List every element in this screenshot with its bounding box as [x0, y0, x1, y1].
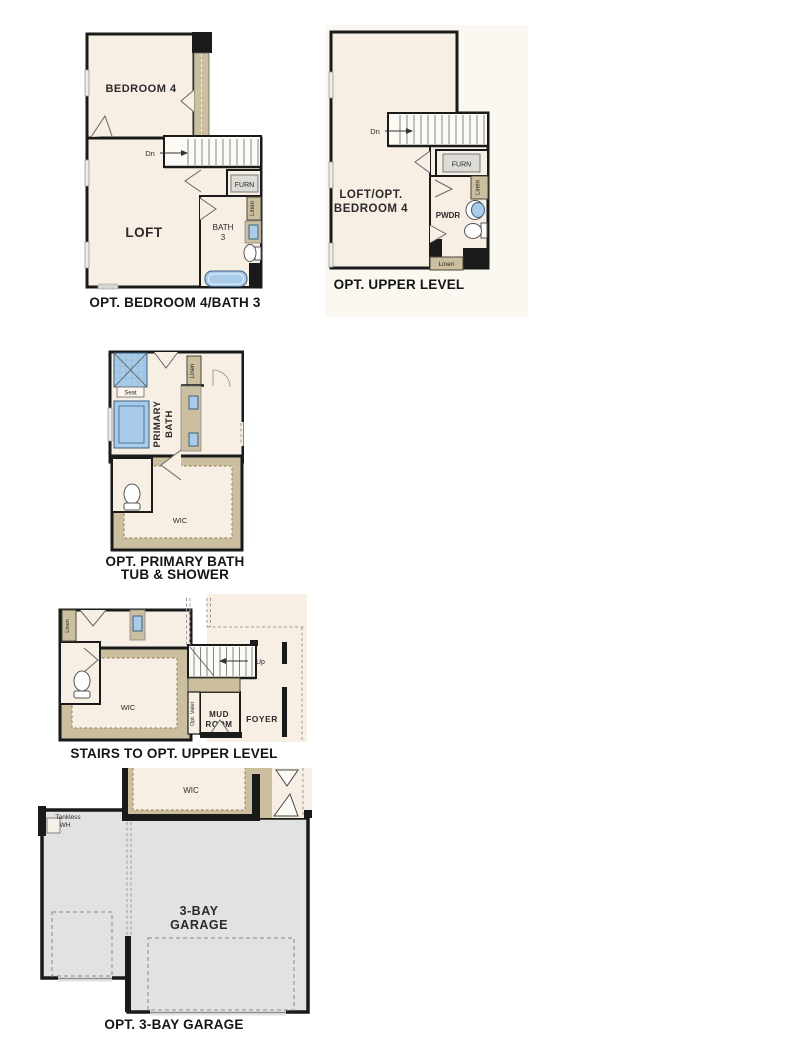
toilet-room [112, 458, 152, 512]
sink [189, 396, 198, 409]
mud-room-label-1: MUD [209, 710, 229, 719]
bath3-number: 3 [221, 233, 226, 242]
wic-label: WIC [173, 516, 188, 525]
caption-opt-3bay-garage: OPT. 3-BAY GARAGE [36, 1018, 312, 1031]
toilet [465, 224, 482, 239]
toilet [74, 671, 90, 691]
floorplan-opt-primary-bath: Seat Linen WIC [104, 348, 244, 554]
loft-label: LOFT [125, 225, 162, 240]
toilet [244, 245, 256, 262]
stairs-down: Dn [370, 113, 488, 146]
linen-label: Linen [65, 619, 71, 632]
opt-valet-label: Opt. Valet [190, 702, 196, 727]
garage-label-1: 3-BAY [180, 904, 219, 918]
dn-label: Dn [145, 149, 155, 158]
floorplan-opt-3bay-garage: WIC Tankless WH 3-BAY GARAGE [36, 766, 312, 1018]
bedroom4-label: BEDROOM 4 [105, 83, 177, 95]
caption-opt-upper-level: OPT. UPPER LEVEL [314, 278, 484, 291]
pedestal-sink [472, 203, 485, 218]
caption-line2: TUB & SHOWER [104, 568, 246, 581]
caption-opt-bedroom4-bath3: OPT. BEDROOM 4/BATH 3 [84, 296, 266, 309]
dn-label: Dn [370, 127, 380, 136]
wic-label: WIC [121, 703, 136, 712]
bathtub [114, 401, 149, 448]
garage-label-2: GARAGE [170, 918, 228, 932]
pwdr-label: PWDR [436, 211, 461, 220]
sink [189, 433, 198, 446]
toilet [124, 484, 140, 504]
garage-outline [42, 810, 308, 1012]
entry [260, 768, 312, 818]
tankless-label-1: Tankless [55, 814, 81, 821]
linen-bottom-label: Linen [439, 261, 455, 268]
loft-opt-label-2: BEDROOM 4 [334, 203, 408, 215]
linen-label: Linen [190, 364, 196, 379]
wic: WIC [122, 768, 260, 821]
loft-opt-label-1: LOFT/OPT. [339, 189, 402, 201]
caption-stairs-opt-upper: STAIRS TO OPT. UPPER LEVEL [56, 747, 292, 760]
stairs-up: Up [188, 640, 265, 678]
linen-side-label: Linen [476, 180, 482, 195]
sink [133, 616, 142, 631]
toilet-room [60, 642, 100, 704]
floorplan-stairs-opt-upper: WIC Linen Up Opt. Va [56, 592, 308, 744]
floorplan-opt-upper-level: Dn FURN Linen Linen PWDR [322, 26, 492, 294]
wic-label: WIC [183, 786, 199, 795]
shower: Seat [114, 353, 147, 397]
floorplan-sheet: Dn FURN Linen BATH 3 [0, 0, 810, 1048]
bath3-label: BATH [213, 223, 234, 232]
furnace-closet: FURN [227, 170, 261, 196]
tankless-label-2: WH [60, 822, 71, 829]
mud-room: Opt. Valet MUD ROOM [188, 678, 242, 738]
seat-label: Seat [124, 391, 137, 397]
floorplan-opt-bedroom4-bath3: Dn FURN Linen BATH 3 [84, 26, 266, 292]
sink [249, 225, 258, 239]
linen-label: Linen [250, 201, 256, 216]
caption-opt-primary-bath: OPT. PRIMARY BATH TUB & SHOWER [104, 555, 246, 581]
primary-bath-label-1: PRIMARY [152, 400, 163, 447]
furn-label: FURN [235, 182, 254, 189]
furn-label: FURN [452, 162, 471, 169]
furnace-closet: FURN [436, 150, 488, 176]
window [108, 408, 112, 441]
foyer-label: FOYER [246, 714, 278, 724]
up-label: Up [256, 659, 265, 666]
primary-bath-label-2: BATH [164, 410, 175, 438]
